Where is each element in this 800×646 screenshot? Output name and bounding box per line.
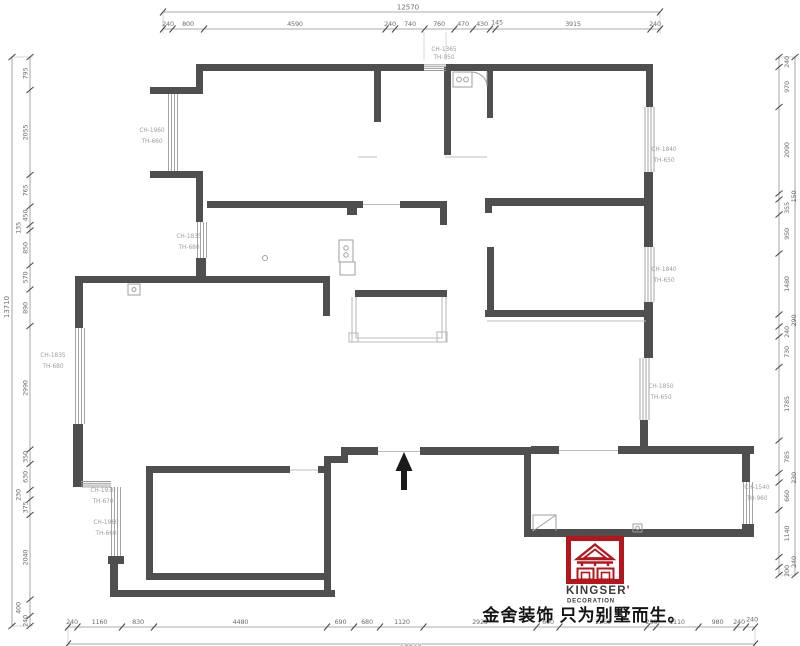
door-arc-icon [471,72,487,86]
dimension-chain-left: 13710 795 2055 765 450 135 850 570 890 2… [3,68,30,627]
north-arrow-icon [396,452,413,490]
dim-label: 765 [22,185,30,197]
dim-label: 355 [783,202,791,214]
opening-label: CH-1840 [651,267,677,273]
dimension-lines [9,9,799,646]
dim-label: 470 [457,20,469,28]
dim-label: 145 [491,19,503,27]
dim-label: 630 [22,471,30,483]
dim-label: 1160 [92,618,108,626]
opening-label: TH-670 [91,499,113,505]
dim-label: 400 [15,602,23,614]
floor-plan-canvas: 12570 240 800 4590 240 740 760 470 430 1… [0,0,800,646]
dim-label: 1785 [783,396,791,412]
dim-label: 240 [384,20,396,28]
opening-label: TH-660 [94,531,116,537]
dim-label: 660 [783,490,791,502]
bath-vanity [339,240,353,262]
dim-label: 135 [15,222,23,234]
faucet-icon [344,246,348,250]
dim-label: 680 [361,618,373,626]
dim-label: 980 [712,618,724,626]
dim-label: 970 [783,81,791,93]
dim-label: 830 [132,618,144,626]
dim-label: 240 [66,618,78,626]
dim-label: 240 [649,20,661,28]
fixtures [128,72,646,532]
dimension-chain-right: 240 970 2090 150 355 950 1480 290 240 73… [783,56,798,577]
opening-label: CH-1960 [93,520,119,526]
logo-brand-text: KINGSER' [566,585,631,597]
opening-label: CH-1835 [176,234,202,240]
opening-label: TH-660 [140,139,162,145]
dim-label: 240 [783,56,791,68]
window-glazing [198,222,207,258]
dim-label: 350 [22,451,30,463]
dim-label: 785 [783,451,791,463]
closet-outline [352,297,446,342]
opening-label: CH-1365 [431,47,457,53]
dim-label: 240 [733,618,745,626]
dim-label: 890 [22,302,30,314]
dim-label: 240 [783,326,791,338]
dim-label: 3915 [565,20,581,28]
meter-box [128,284,140,295]
logo-subtitle-text: DECORATION [567,599,615,605]
dim-label: 1480 [783,276,791,292]
shower-corner [533,515,556,531]
sink-bowl-icon [464,77,469,82]
dim-label: 240 [790,556,798,568]
opening-label: TH-950 [432,55,454,61]
dim-label: 240 [746,616,758,624]
dim-label: 2090 [783,142,791,158]
slogan-text: 金舍装饰 只为别墅而生。 [481,605,685,625]
dim-label: 430 [476,20,488,28]
opening-label: CH-1960 [139,128,165,134]
meter-dial-icon [132,288,136,292]
dim-label: 4590 [287,20,303,28]
window-glazing [169,94,178,171]
dim-label: 690 [335,618,347,626]
dim-label: 1120 [394,618,410,626]
window-glazing [645,247,654,302]
window-glazing [81,482,111,487]
opening-label: TH-680 [41,364,63,370]
opening-label: TH-650 [652,158,674,164]
opening-label: TH-960 [745,496,767,502]
opening-label: TH-650 [649,395,671,401]
dim-label: 760 [433,20,445,28]
dim-label: 230 [790,472,798,484]
faucet-icon [344,253,348,257]
dim-label: 4480 [233,618,249,626]
window-glazing [424,65,446,71]
dim-label: 570 [22,272,30,284]
dim-total: 13710 [3,296,11,318]
dim-label: 800 [182,20,194,28]
kingser-logo: KINGSER' DECORATION [566,539,631,605]
dim-label: 230 [15,489,23,501]
opening-label: TH-680 [177,245,199,251]
opening-label: CH-1850 [648,384,674,390]
opening-label: TH-650 [652,278,674,284]
window-glazing [76,328,85,424]
dim-label: 450 [22,210,30,222]
dim-label: 2990 [22,380,30,396]
dim-label: 950 [783,228,791,240]
floor-plan-drawing: 12570 240 800 4590 240 740 760 470 430 1… [0,0,800,646]
dim-label: 730 [783,346,791,358]
dim-label: 240 [22,615,30,627]
sink-bowl-icon [457,77,462,82]
logo-beam-icon [577,563,613,567]
dim-label: 795 [22,68,30,80]
dim-label: 375 [22,502,30,514]
dim-label: 150 [790,191,798,203]
dim-label: 1140 [783,526,791,542]
kitchen-sink [453,72,472,87]
opening-label: CH-1840 [651,147,677,153]
dim-label: 240 [162,20,174,28]
opening-label: CH-1540 [744,485,770,491]
floor-plan-walls [73,64,754,597]
dim-label: 2055 [22,125,30,141]
opening-label: CH-1930 [90,488,116,494]
dimension-chain-top: 12570 240 800 4590 240 740 760 470 430 1… [162,4,661,29]
dim-total: 12570 [397,4,419,12]
opening-label: CH-1835 [40,353,66,359]
dim-label: 200 [783,565,791,577]
dim-label: 290 [790,315,798,327]
ceiling-point-icon [263,256,268,261]
dim-label: 2040 [22,550,30,566]
dim-label: 740 [404,20,416,28]
dim-label: 850 [22,242,30,254]
bath-fixture [340,262,355,275]
